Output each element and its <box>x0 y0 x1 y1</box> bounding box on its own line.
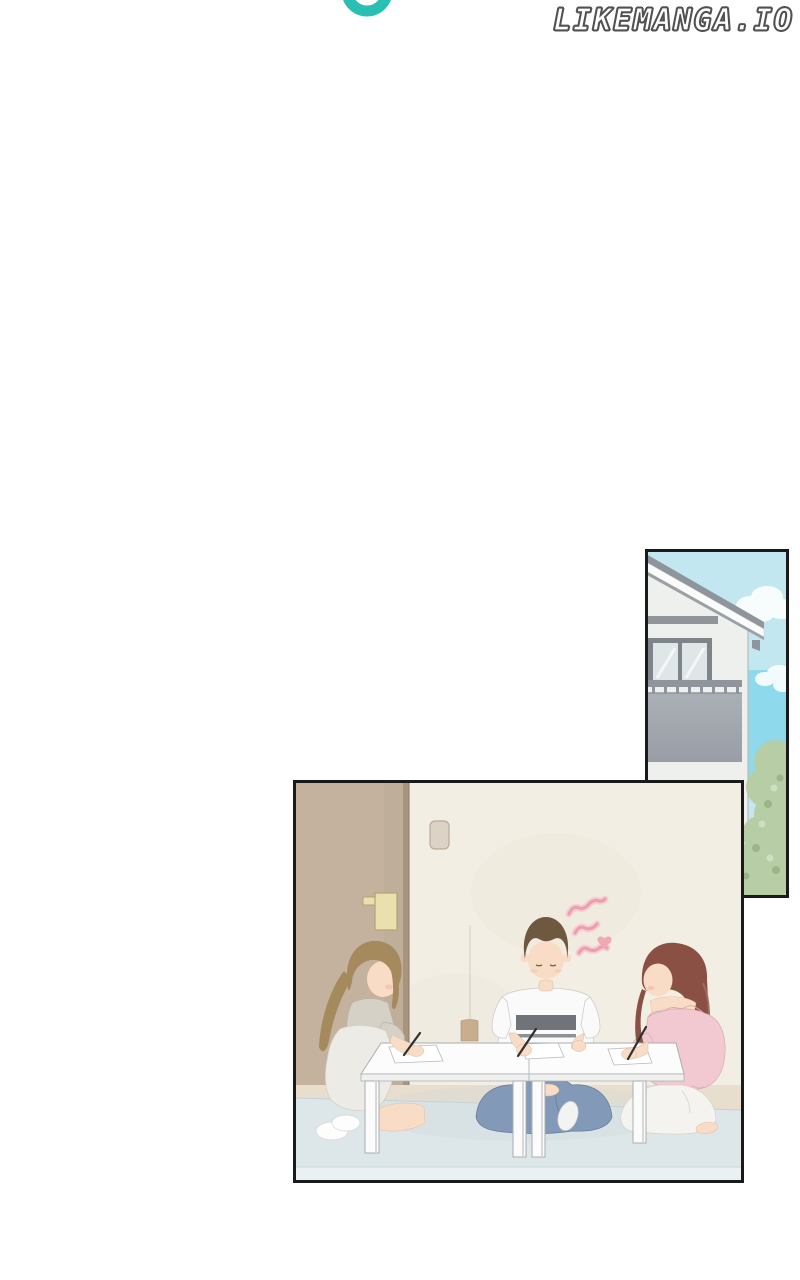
gable-beam <box>648 616 718 624</box>
shirt-stripe <box>516 1015 576 1030</box>
panel-study-room <box>293 780 744 1183</box>
manga-page: LIKEMANGA.IO <box>0 0 800 1280</box>
wall-post-base <box>461 1020 478 1042</box>
site-watermark: LIKEMANGA.IO <box>553 3 794 38</box>
upper-window <box>648 638 712 686</box>
doorbell-plate <box>430 821 449 849</box>
site-logo-icon <box>330 0 410 20</box>
